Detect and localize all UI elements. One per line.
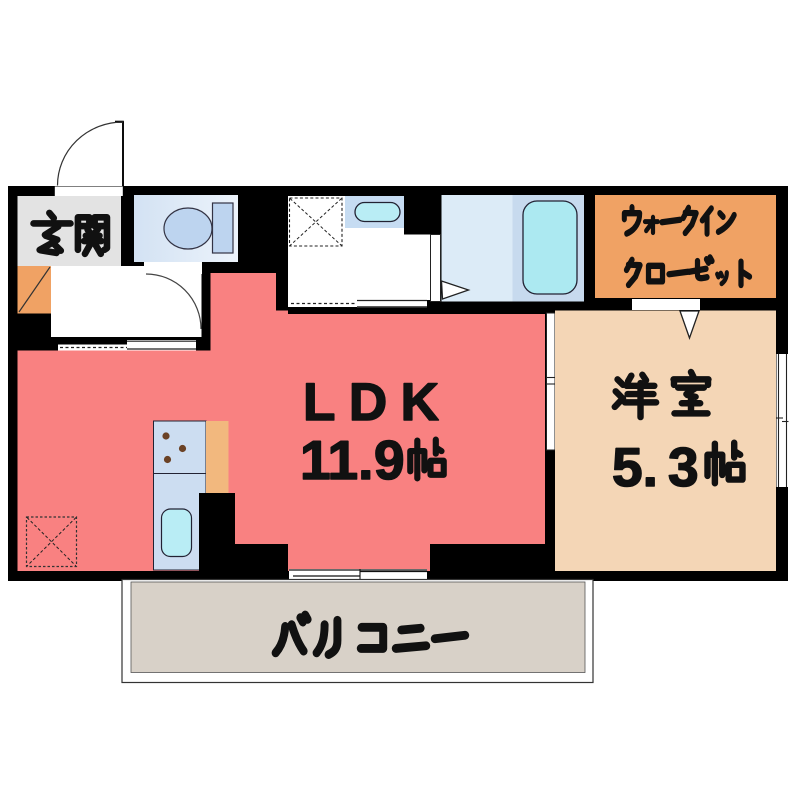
svg-text:5.: 5. — [612, 436, 658, 498]
svg-text:11.: 11. — [300, 429, 373, 491]
svg-text:9: 9 — [374, 429, 405, 491]
svg-text:LDK: LDK — [303, 373, 452, 432]
svg-text:3: 3 — [668, 436, 699, 498]
